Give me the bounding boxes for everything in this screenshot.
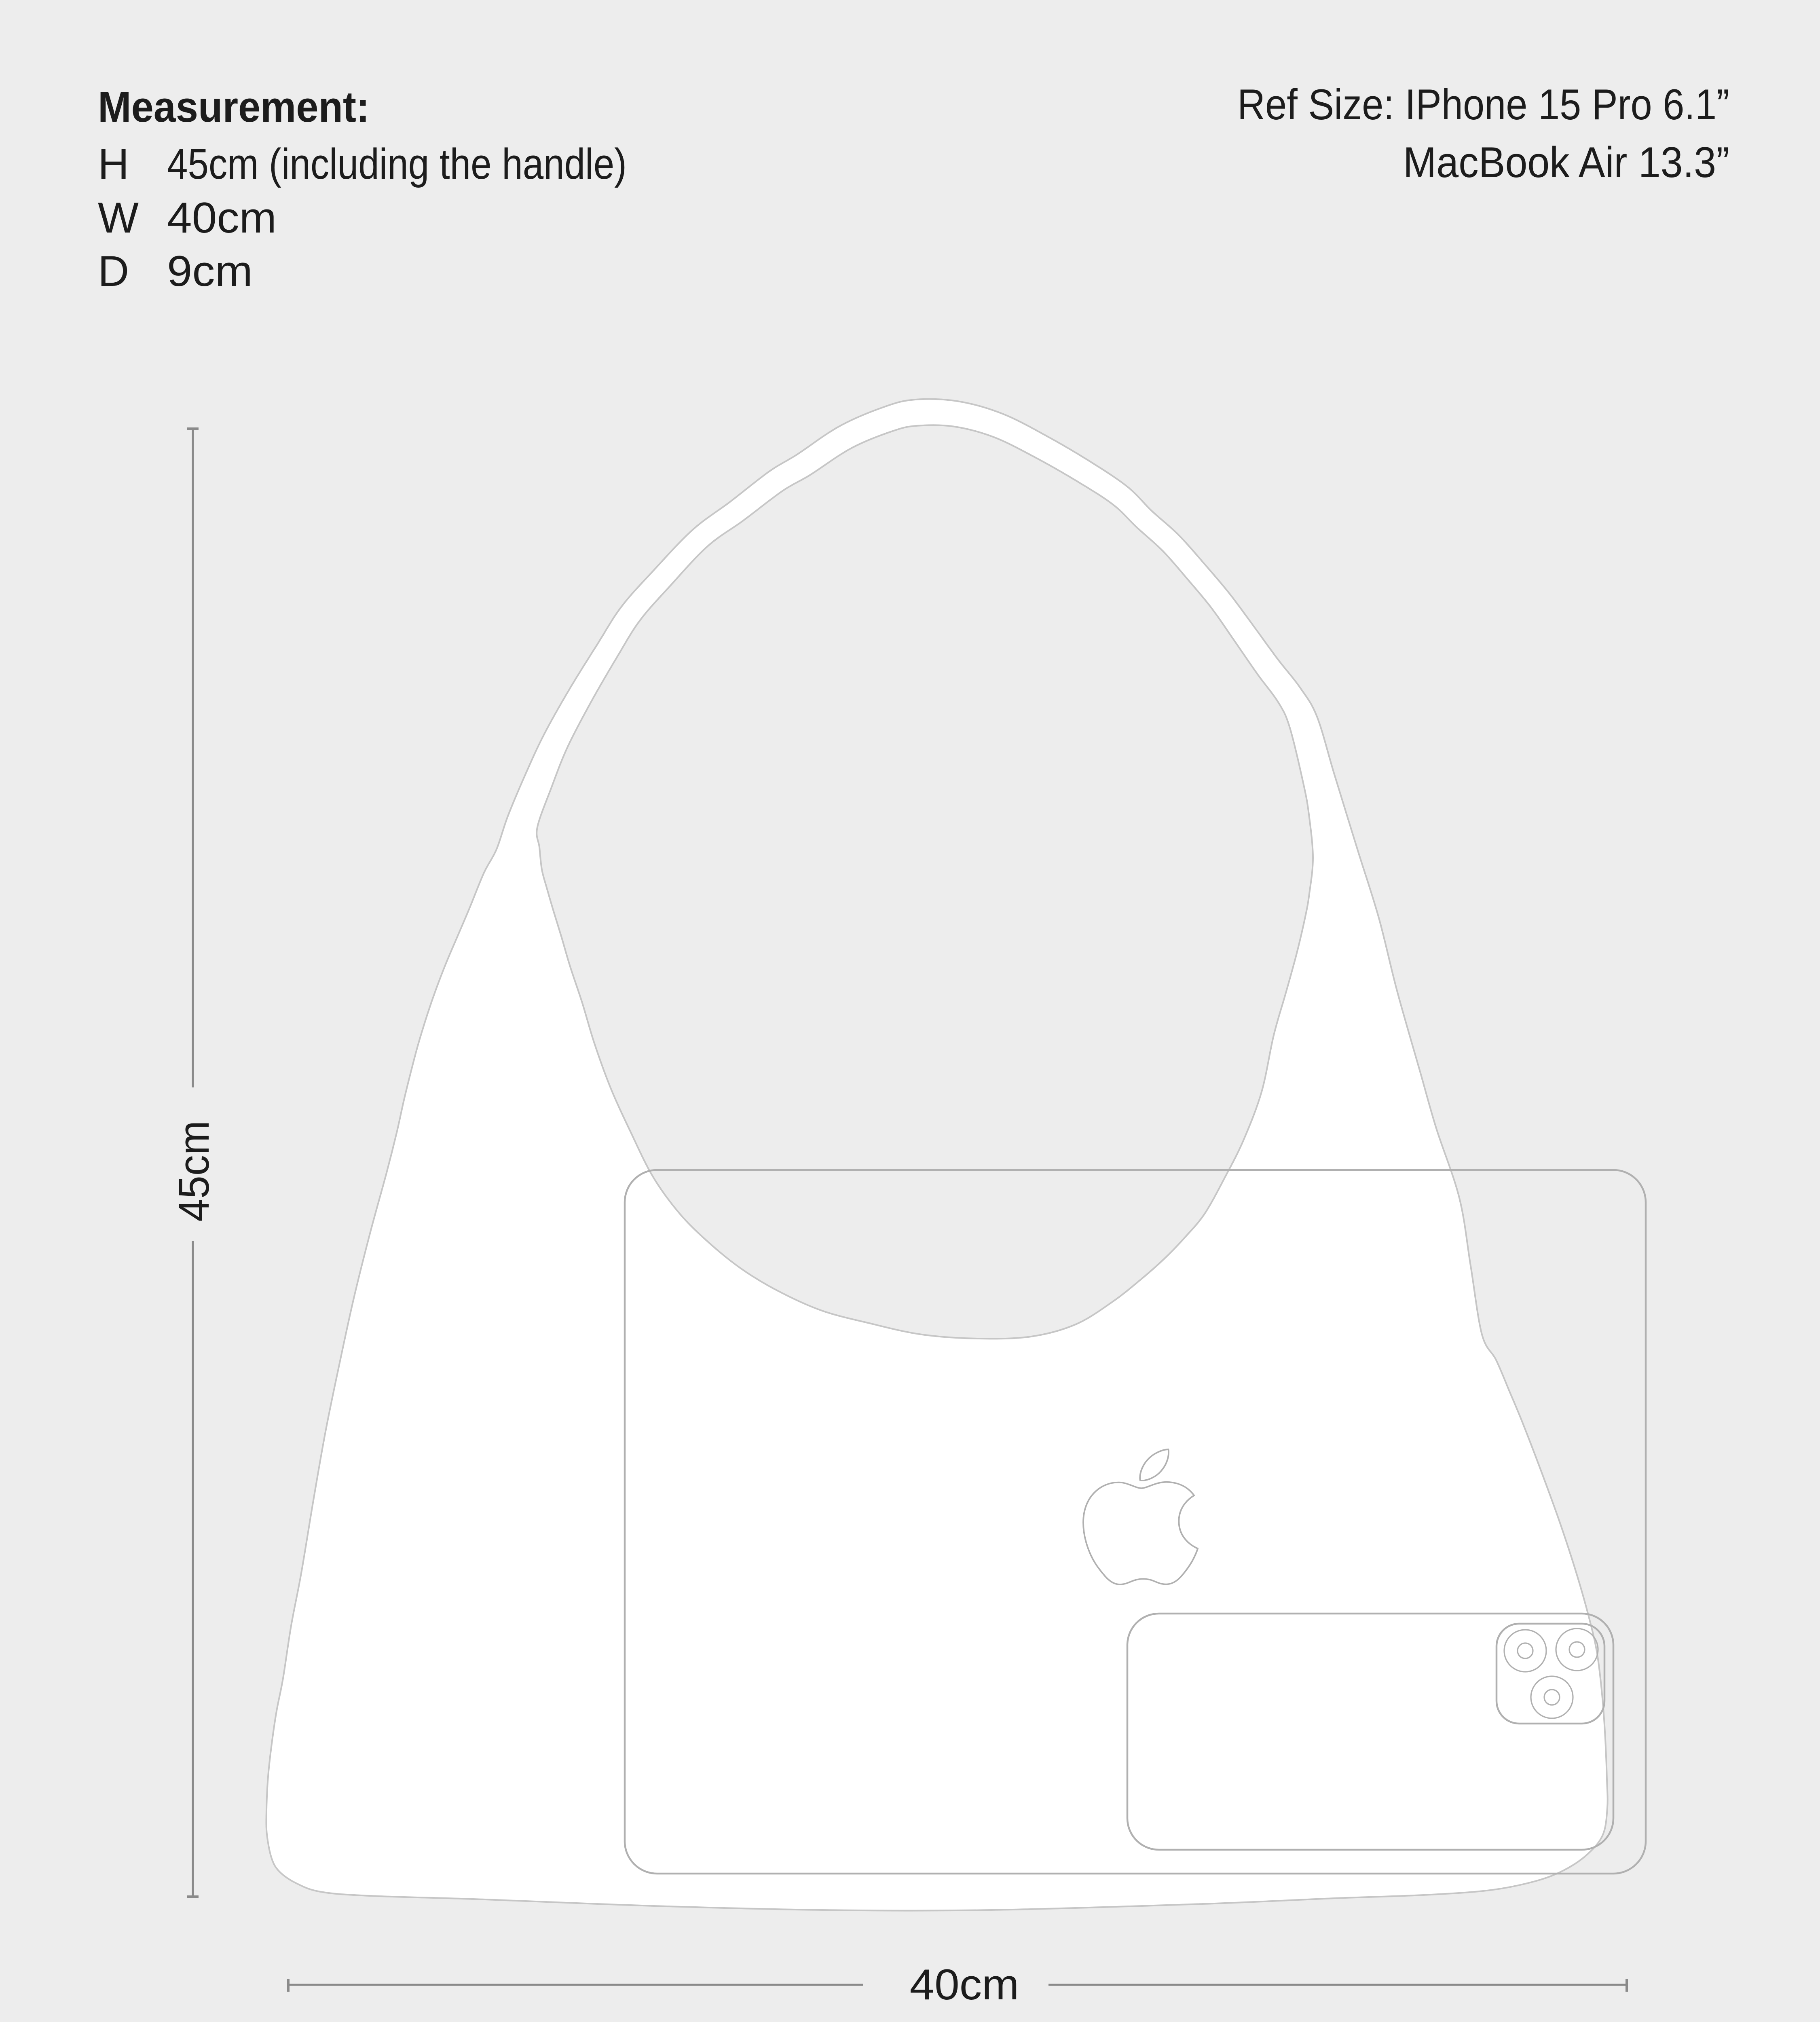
svg-text:Measurement:: Measurement: <box>98 82 370 131</box>
svg-text:40cm: 40cm <box>910 1960 1019 2009</box>
svg-text:9cm: 9cm <box>167 247 253 295</box>
svg-text:45cm: 45cm <box>169 1121 218 1222</box>
svg-text:Ref Size: IPhone 15 Pro 6.1”: Ref Size: IPhone 15 Pro 6.1” <box>1237 80 1729 129</box>
svg-text:MacBook Air 13.3”: MacBook Air 13.3” <box>1403 138 1729 186</box>
svg-text:H: H <box>98 140 129 188</box>
svg-text:D: D <box>98 247 129 295</box>
svg-text:45cm (including the handle): 45cm (including the handle) <box>167 140 627 188</box>
svg-text:W: W <box>98 193 139 242</box>
svg-text:40cm: 40cm <box>167 193 277 242</box>
